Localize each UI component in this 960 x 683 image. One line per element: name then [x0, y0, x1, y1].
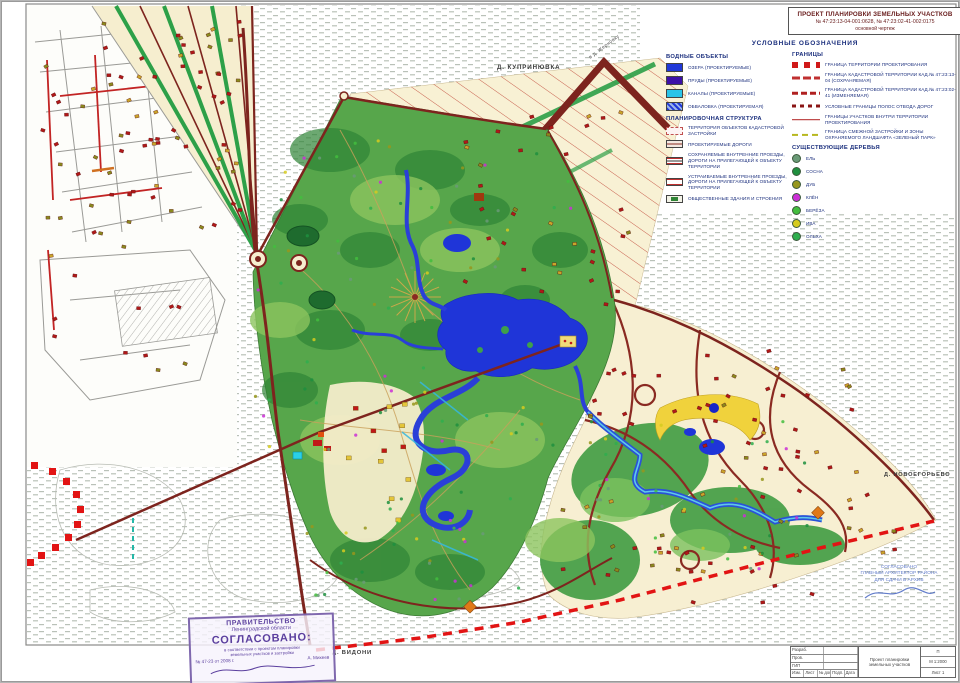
legend-item: УСЛОВНЫЕ ГРАНИЦЫ ПОЛОС ОТВОДА ДОРОГ	[792, 103, 958, 110]
legend-item: ЕЛЬ	[792, 154, 958, 163]
public-buildings-swatch	[666, 195, 683, 203]
signature-squiggle	[203, 661, 323, 677]
border-line-swatch	[792, 103, 820, 110]
drawing-title-block: ПРОЕКТ ПЛАНИРОВКИ ЗЕМЕЛЬНЫХ УЧАСТКОВ № 4…	[788, 7, 960, 35]
border-line-swatch	[792, 61, 820, 68]
canal-swatch	[666, 89, 683, 98]
kept-drives-swatch	[666, 157, 683, 165]
village-label-north: Д. КУПРИНЮВКА	[497, 64, 561, 71]
legend-item: СОСНА	[792, 167, 958, 176]
legend-item: КАНАЛЫ (ПРОЕКТИРУЕМЫЕ)	[666, 89, 790, 98]
legend-planning-title: ПЛАНИРОВОЧНАЯ СТРУКТУРА	[666, 116, 790, 122]
legend-item: УСТРАИВАЕМЫЕ ВНУТРЕННИЕ ПРОЕЗДЫ, ДОРОГИ …	[666, 174, 790, 191]
territory-swatch	[666, 127, 683, 135]
legend-item: КЛЁН	[792, 193, 958, 202]
legend-item: ОЛЬХА	[792, 232, 958, 241]
legend-left-column: ВОДНЫЕ ОБЪЕКТЫ ОЗЕРА (ПРОЕКТИРУЕМЫЕ) ПРУ…	[666, 54, 790, 207]
radial-star-paths	[389, 271, 441, 323]
legend-item: ОБВАЛОВКА (ПРОЕКТИРУЕМАЯ)	[666, 102, 790, 111]
legend-item: ДУБ	[792, 180, 958, 189]
drawing-subtitle: основной чертеж	[791, 26, 959, 32]
drawing-sheet: УСЛОВНЫЕ ОБОЗНАЧЕНИЯ ВОДНЫЕ ОБЪЕКТЫ ОЗЕР…	[0, 0, 960, 683]
village-label-south: Д. ВИДОНИ	[332, 650, 372, 656]
tree-dot-swatch	[792, 206, 801, 215]
legend-item: ГРАНИЦА СМЕЖНОЙ ЗАСТРОЙКИ И ЗОНЫ ОХРАНЯЕ…	[792, 129, 958, 140]
legend-item: ГРАНИЦА ТЕРРИТОРИИ ПРОЕКТИРОВАНИЯ	[792, 61, 958, 68]
border-line-swatch	[792, 132, 820, 139]
border-line-swatch	[792, 116, 820, 123]
built-drives-swatch	[666, 178, 683, 186]
blue-signature-squiggle	[859, 584, 939, 604]
legend-title: УСЛОВНЫЕ ОБОЗНАЧЕНИЯ	[652, 40, 958, 47]
new-roads-swatch	[666, 140, 683, 148]
lake-swatch	[666, 63, 683, 72]
tree-dot-swatch	[792, 232, 801, 241]
village-label-east: Д. НОВОЕГОРЬЕВО	[884, 472, 950, 478]
legend-item: БЕРЁЗА	[792, 206, 958, 215]
tree-dot-swatch	[792, 167, 801, 176]
legend-item: ИВА	[792, 219, 958, 228]
tree-dot-swatch	[792, 193, 801, 202]
tree-dot-swatch	[792, 180, 801, 189]
legend-item: СОХРАНЯЕМЫЕ ВНУТРЕННИЕ ПРОЕЗДЫ, ДОРОГИ Н…	[666, 152, 790, 169]
stamp-project-name: Проект планировки земельных участков	[859, 647, 921, 677]
tree-dot-swatch	[792, 219, 801, 228]
border-line-swatch	[792, 90, 820, 97]
legend-item: ОБЩЕСТВЕННЫЕ ЗДАНИЯ И СТРОЕНИЯ	[666, 195, 790, 203]
blue-approval-note: СОГЛАСОВАНО ГЛАВНЫЙ АРХИТЕКТОР РАЙОНА ДЛ…	[843, 565, 955, 608]
project-title: ПРОЕКТ ПЛАНИРОВКИ ЗЕМЕЛЬНЫХ УЧАСТКОВ	[791, 11, 959, 18]
legend-item: ОЗЕРА (ПРОЕКТИРУЕМЫЕ)	[666, 63, 790, 72]
legend-item: ТЕРРИТОРИЯ ОБЪЕКТОВ КАДАСТРОВОЙ ЗАСТРОЙК…	[666, 125, 790, 136]
approval-stamp: ПРАВИТЕЛЬСТВО Ленинградской области СОГЛ…	[188, 612, 336, 683]
pond-swatch	[666, 76, 683, 85]
legend-water-title: ВОДНЫЕ ОБЪЕКТЫ	[666, 54, 790, 60]
sheet-stamp-table: Разраб. Пров. ГИП Изм. Лист № док. Подп.…	[790, 646, 956, 678]
legend-item: ПРУДЫ (ПРОЕКТИРУЕМЫЕ)	[666, 76, 790, 85]
stamp-signature: А. Михеев	[307, 655, 329, 661]
legend-item: ГРАНИЦЫ УЧАСТКОВ ВНУТРИ ТЕРРИТОРИИ ПРОЕК…	[792, 114, 958, 125]
legend-item: ПРОЕКТИРУЕМЫЕ ДОРОГИ	[666, 140, 790, 148]
legend-item: ГРАНИЦА КАДАСТРОВОЙ ТЕРРИТОРИИ КАД.№ 47:…	[792, 72, 958, 83]
legend-trees-title: СУЩЕСТВУЮЩИЕ ДЕРЕВЬЯ	[792, 145, 958, 151]
cadastral-numbers: № 47:23:13-04-001:0628, № 47:23:02-41-00…	[791, 19, 959, 25]
tree-dot-swatch	[792, 154, 801, 163]
legend-borders-title: ГРАНИЦЫ	[792, 52, 958, 58]
legend-item: ГРАНИЦА КАДАСТРОВОЙ ТЕРРИТОРИИ КАД.№ 47:…	[792, 87, 958, 98]
embankment-swatch	[666, 102, 683, 111]
legend-right-column: ГРАНИЦЫ ГРАНИЦА ТЕРРИТОРИИ ПРОЕКТИРОВАНИ…	[792, 52, 958, 245]
border-line-swatch	[792, 74, 820, 81]
